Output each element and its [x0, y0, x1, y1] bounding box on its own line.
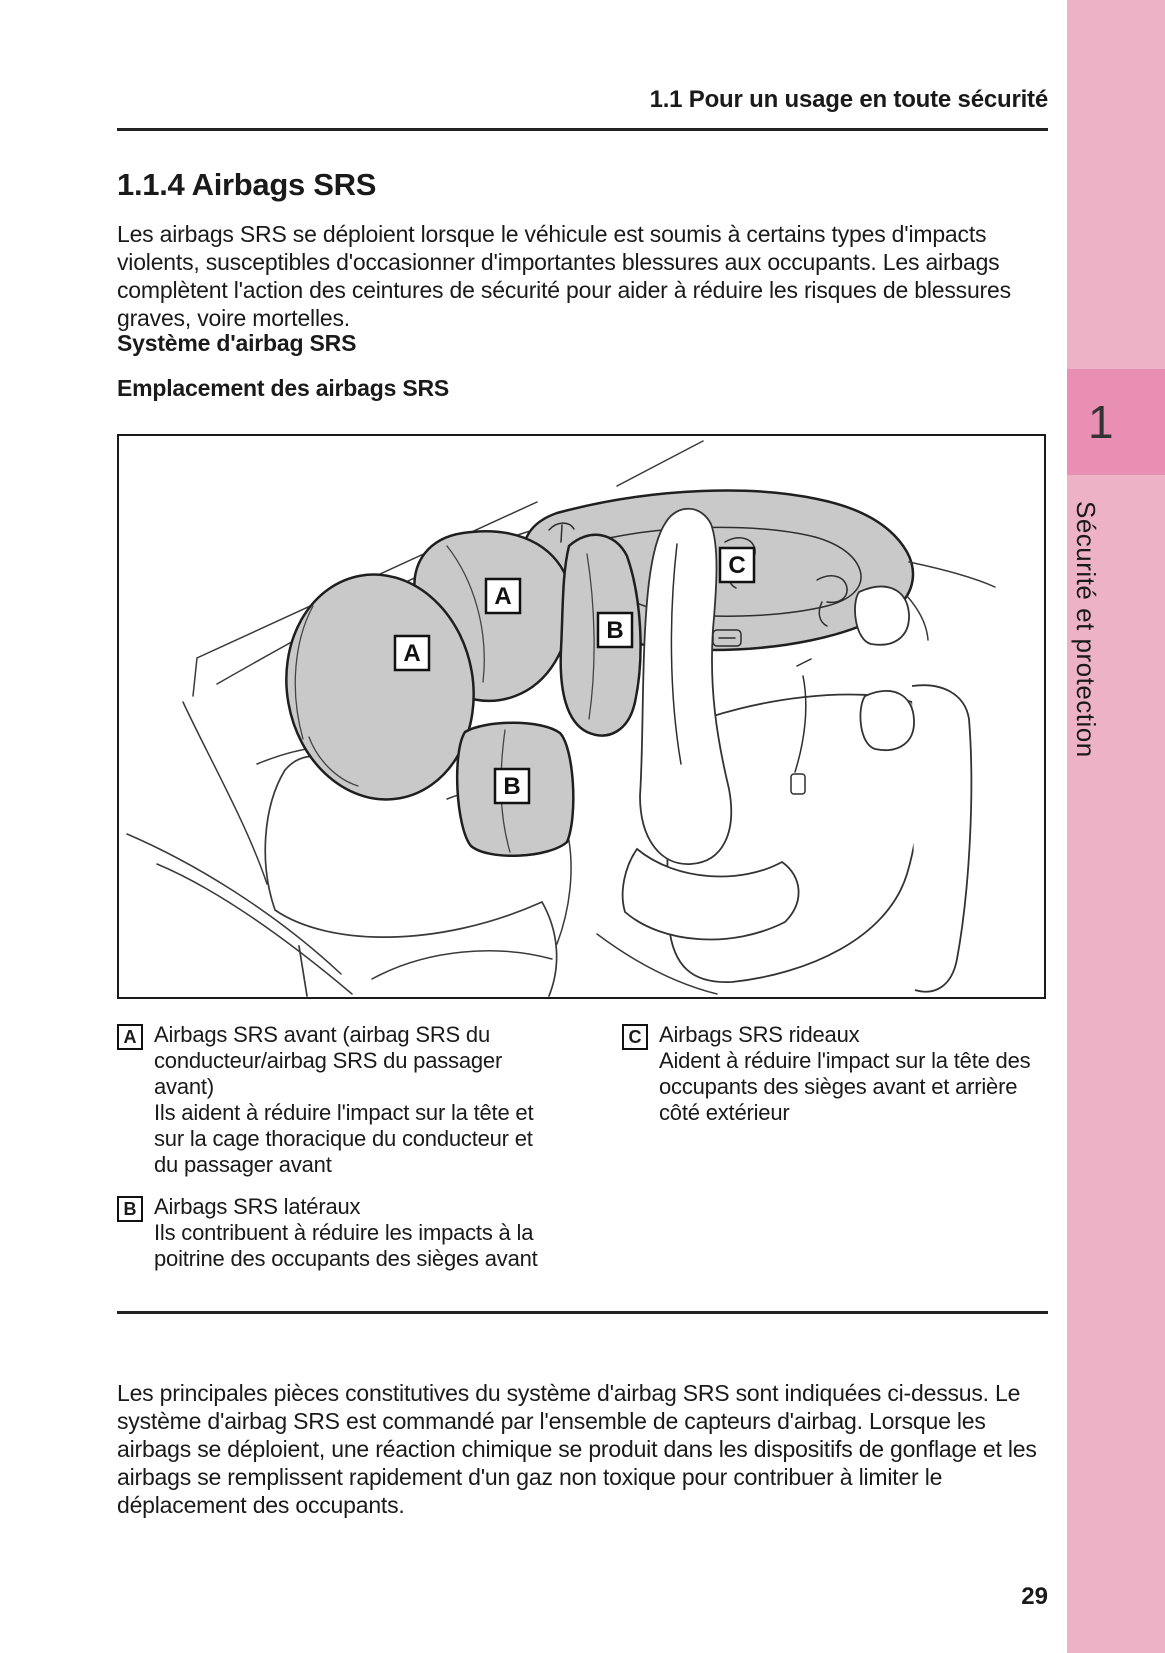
svg-text:B: B — [606, 617, 623, 644]
legend-right-column: C Airbags SRS rideaux Aident à réduire l… — [622, 1022, 1048, 1288]
chapter-color-strip — [1067, 0, 1165, 1653]
chapter-title-vertical: Sécurité et protection — [1070, 501, 1101, 758]
figure-label-side-airbag-upper: B — [598, 613, 632, 647]
legend-desc-front-airbags: Ils aident à réduire l'impact sur la têt… — [154, 1100, 552, 1178]
intro-paragraph: Les airbags SRS se déploient lorsque le … — [117, 220, 1048, 332]
legend-item-curtain-airbags: C Airbags SRS rideaux Aident à réduire l… — [622, 1022, 1048, 1126]
legend-marker-a: A — [117, 1024, 143, 1050]
car-interior-illustration: A A B B C — [119, 436, 1044, 997]
legend-left-column: A Airbags SRS avant (airbag SRS du condu… — [117, 1022, 622, 1288]
subheading-airbag-locations: Emplacement des airbags SRS — [117, 375, 449, 402]
legend-desc-curtain-airbags: Aident à réduire l'impact sur la tête de… — [659, 1048, 1048, 1126]
svg-text:A: A — [494, 583, 511, 610]
figure-label-driver-airbag: A — [395, 636, 429, 670]
legend-item-side-airbags: B Airbags SRS latéraux Ils contribuent à… — [117, 1194, 622, 1272]
legend-marker-c: C — [622, 1024, 648, 1050]
figure-legend: A Airbags SRS avant (airbag SRS du condu… — [117, 1022, 1048, 1288]
legend-title-curtain-airbags: Airbags SRS rideaux — [659, 1022, 1048, 1048]
airbag-location-figure: A A B B C — [117, 434, 1046, 999]
page-content: 1.1 Pour un usage en toute sécurité 1.1.… — [117, 0, 1048, 1653]
subheading-airbag-system: Système d'airbag SRS — [117, 330, 356, 357]
figure-label-side-airbag-lower: B — [495, 769, 529, 803]
chapter-number-tab: 1 — [1067, 369, 1165, 475]
legend-marker-b: B — [117, 1196, 143, 1222]
legend-divider — [117, 1311, 1048, 1314]
running-header: 1.1 Pour un usage en toute sécurité — [117, 86, 1048, 114]
legend-title-front-airbags: Airbags SRS avant (airbag SRS du conduct… — [154, 1022, 552, 1100]
svg-text:A: A — [403, 640, 420, 667]
chapter-number: 1 — [1088, 395, 1114, 449]
section-title: 1.1.4 Airbags SRS — [117, 167, 376, 203]
svg-text:C: C — [728, 552, 745, 579]
figure-label-curtain-airbag: C — [720, 548, 754, 582]
figure-label-passenger-airbag: A — [486, 579, 520, 613]
svg-text:B: B — [503, 773, 520, 800]
closing-paragraph: Les principales pièces constitutives du … — [117, 1379, 1048, 1519]
legend-item-front-airbags: A Airbags SRS avant (airbag SRS du condu… — [117, 1022, 622, 1178]
legend-title-side-airbags: Airbags SRS latéraux — [154, 1194, 552, 1220]
legend-desc-side-airbags: Ils contribuent à réduire les impacts à … — [154, 1220, 552, 1272]
header-divider — [117, 128, 1048, 131]
page-number: 29 — [1021, 1583, 1048, 1611]
